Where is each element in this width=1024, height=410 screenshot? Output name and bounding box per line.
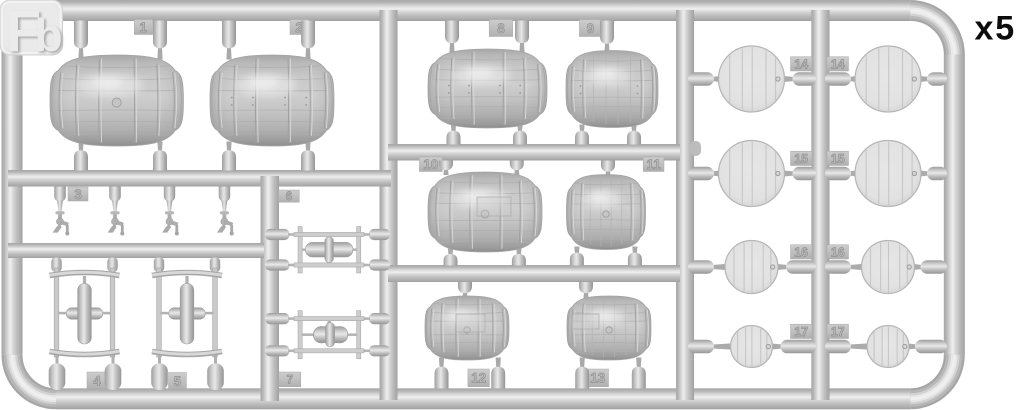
svg-text:14: 14: [794, 57, 808, 71]
svg-text:b: b: [35, 9, 63, 61]
svg-text:8: 8: [497, 21, 505, 36]
svg-text:16: 16: [794, 245, 808, 259]
svg-text:4: 4: [93, 373, 101, 388]
svg-text:9: 9: [587, 21, 595, 36]
svg-text:17: 17: [831, 325, 845, 339]
svg-text:16: 16: [831, 245, 845, 259]
svg-text:10: 10: [423, 157, 438, 172]
svg-text:5: 5: [174, 374, 182, 389]
svg-text:14: 14: [831, 57, 845, 71]
svg-text:15: 15: [831, 152, 845, 166]
svg-text:7: 7: [287, 375, 293, 387]
svg-text:12: 12: [471, 371, 486, 386]
svg-text:6: 6: [286, 191, 292, 203]
svg-text:3: 3: [74, 187, 82, 202]
svg-text:15: 15: [794, 152, 808, 166]
svg-text:11: 11: [646, 157, 661, 172]
svg-text:13: 13: [590, 371, 606, 386]
svg-text:1: 1: [140, 20, 148, 35]
svg-text:x5: x5: [975, 10, 1016, 48]
svg-text:17: 17: [794, 325, 808, 339]
